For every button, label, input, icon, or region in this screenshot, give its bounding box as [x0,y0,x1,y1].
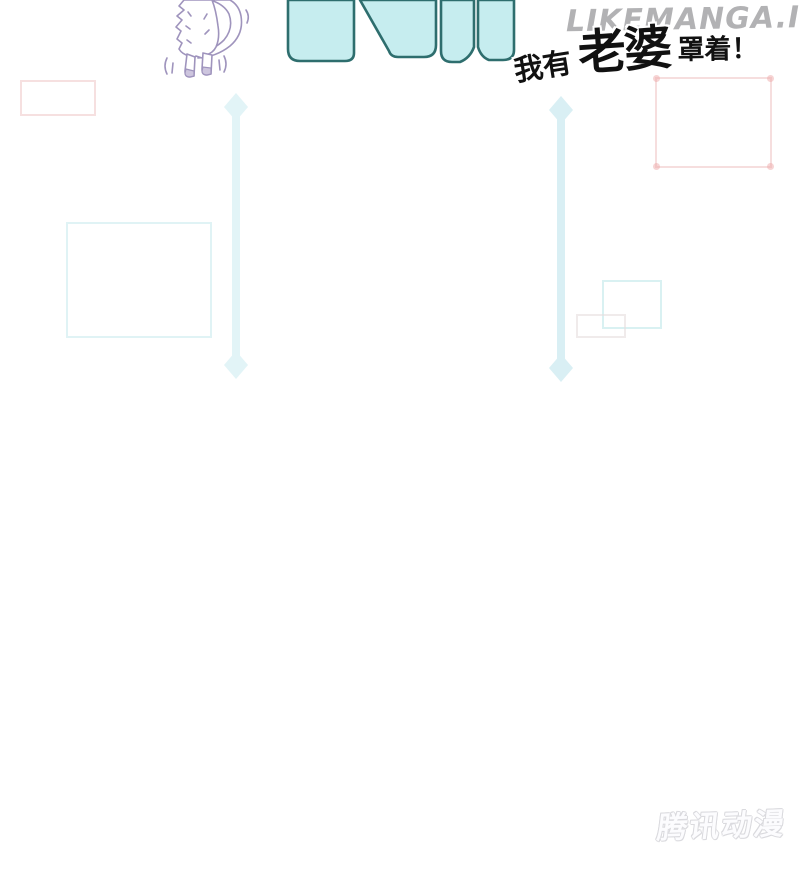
headline-suffix: 罩着！ [677,27,759,67]
publisher-logo: 腾讯动漫 [655,799,789,847]
headline-prefix: 我有 [511,39,575,90]
sfx-letters-icon [284,0,520,68]
sketch-panel-outline-gray-small [576,314,626,338]
sketch-panel-outline-cyan-left [66,222,212,338]
cat-rear-illustration [158,0,262,92]
motion-arrow-right-icon [546,96,576,382]
manga-page: 我有 老婆 罩着！ LIKEMANGA.IO 腾讯动漫 [0,0,800,889]
sketch-panel-outline-pink-left [20,80,96,116]
corner-dot [767,75,774,82]
sketch-panel-outline-pink-right [655,77,772,168]
motion-arrow-left-icon [221,93,251,379]
headline-emphasis: 老婆 [575,8,672,84]
corner-dot [767,163,774,170]
corner-dot [653,163,660,170]
headline-text: 我有 老婆 罩着！ [510,1,760,88]
